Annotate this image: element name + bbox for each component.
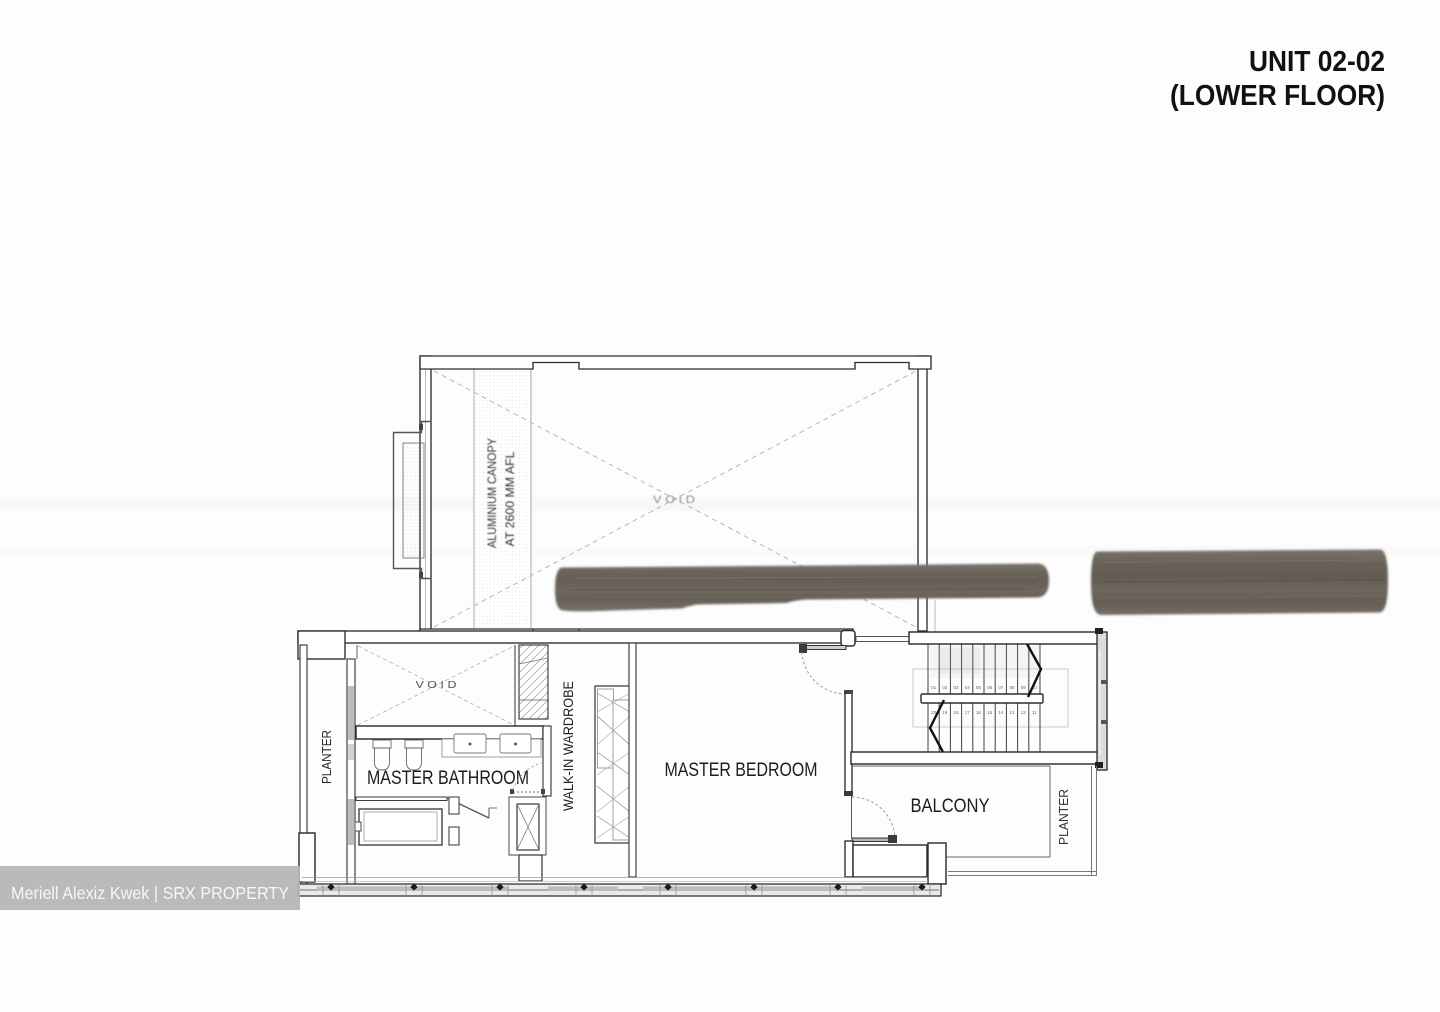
- svg-text:MASTER BEDROOM: MASTER BEDROOM: [665, 760, 818, 781]
- svg-text:12: 12: [1021, 710, 1027, 715]
- svg-text:AT 2600 MM AFL: AT 2600 MM AFL: [503, 451, 517, 546]
- svg-text:ALUMINIUM CANOPY: ALUMINIUM CANOPY: [485, 438, 499, 548]
- svg-text:15: 15: [987, 710, 993, 715]
- svg-text:14: 14: [998, 710, 1004, 715]
- svg-text:01: 01: [931, 685, 937, 690]
- svg-text:PLANTER: PLANTER: [319, 730, 334, 784]
- svg-text:V O I D: V O I D: [416, 680, 457, 691]
- svg-text:13: 13: [1009, 710, 1015, 715]
- svg-text:V O I D: V O I D: [653, 494, 695, 506]
- svg-text:UNIT 02-02: UNIT 02-02: [1249, 46, 1385, 78]
- svg-text:07: 07: [998, 685, 1004, 690]
- svg-text:11: 11: [1032, 710, 1037, 715]
- svg-text:08: 08: [1009, 685, 1015, 690]
- svg-text:Meriell Alexiz Kwek | SRX PROP: Meriell Alexiz Kwek | SRX PROPERTY: [11, 883, 289, 903]
- svg-text:17: 17: [965, 710, 971, 715]
- svg-text:04: 04: [965, 685, 971, 690]
- svg-text:WALK-IN WARDROBE: WALK-IN WARDROBE: [561, 681, 576, 811]
- svg-text:18: 18: [953, 710, 959, 715]
- svg-text:09: 09: [1021, 685, 1027, 690]
- svg-text:MASTER BATHROOM: MASTER BATHROOM: [367, 768, 529, 789]
- svg-text:(LOWER FLOOR): (LOWER FLOOR): [1170, 80, 1385, 112]
- svg-text:06: 06: [987, 685, 993, 690]
- svg-text:02: 02: [942, 685, 948, 690]
- svg-text:05: 05: [976, 685, 982, 690]
- svg-text:19: 19: [942, 710, 948, 715]
- svg-text:PLANTER: PLANTER: [1057, 789, 1071, 845]
- svg-text:16: 16: [976, 710, 982, 715]
- svg-text:BALCONY: BALCONY: [911, 796, 990, 817]
- svg-text:03: 03: [953, 685, 959, 690]
